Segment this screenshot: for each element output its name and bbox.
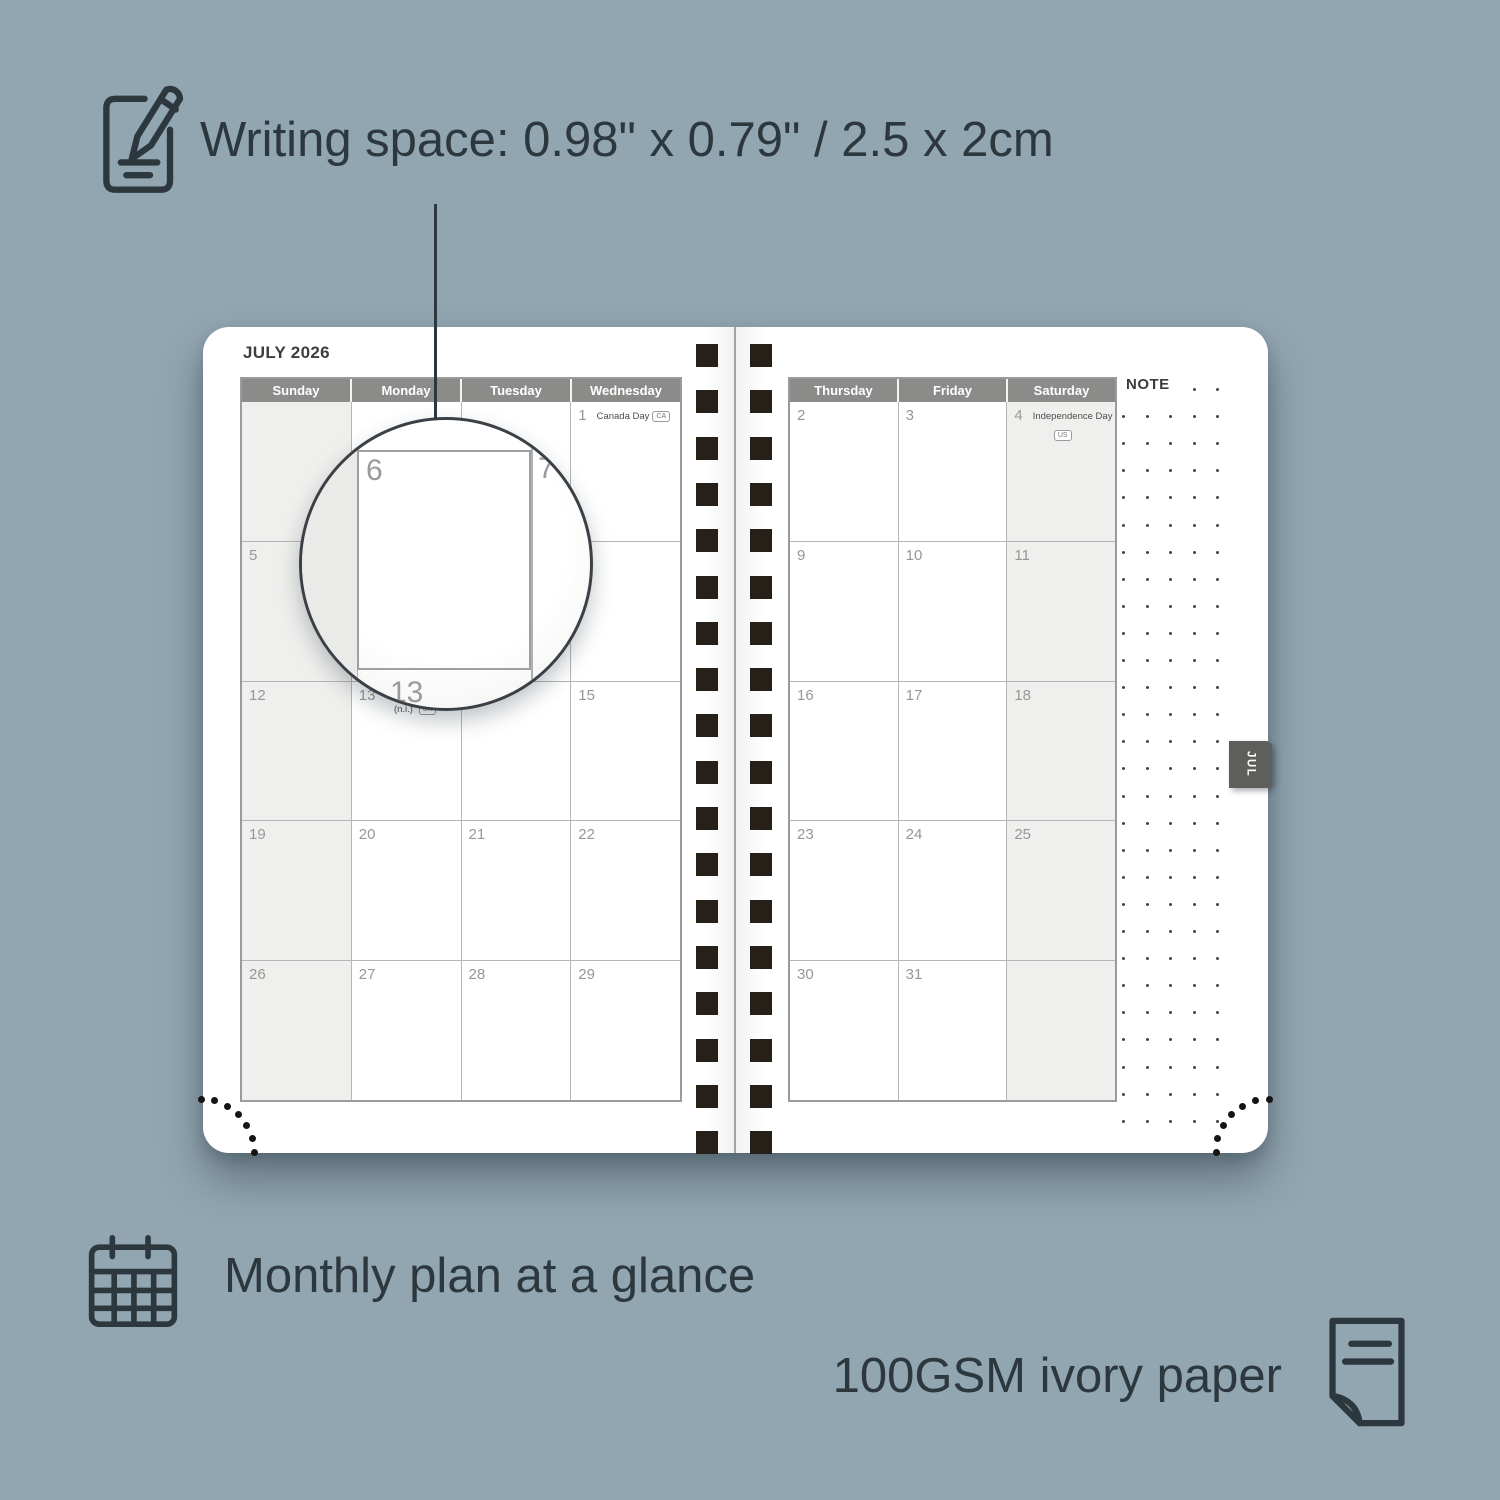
note-dot bbox=[1169, 578, 1172, 581]
note-dot bbox=[1169, 524, 1172, 527]
note-dot bbox=[1193, 849, 1196, 852]
note-dot bbox=[1216, 957, 1219, 960]
note-dot bbox=[1216, 849, 1219, 852]
note-dot bbox=[1216, 767, 1219, 770]
note-dot bbox=[1122, 632, 1125, 635]
note-dot bbox=[1193, 1120, 1196, 1123]
calendar-row: 3031 bbox=[790, 960, 1115, 1100]
perforation-dot bbox=[1239, 1103, 1246, 1110]
note-dot bbox=[1169, 767, 1172, 770]
perforation-dot bbox=[1228, 1111, 1235, 1118]
calendar-cell: 10 bbox=[898, 542, 1007, 681]
note-dot bbox=[1169, 849, 1172, 852]
magnified-bottom-day-number: 13 bbox=[390, 676, 423, 710]
calendar-cell: 29 bbox=[570, 961, 680, 1100]
calendar-row: 26272829 bbox=[242, 960, 680, 1100]
spiral-hole bbox=[750, 529, 772, 552]
spiral-hole bbox=[696, 529, 718, 552]
note-dot bbox=[1193, 957, 1196, 960]
note-dot bbox=[1122, 605, 1125, 608]
note-dot bbox=[1216, 496, 1219, 499]
cell-content: 18 bbox=[1007, 682, 1115, 704]
note-dot bbox=[1169, 795, 1172, 798]
note-dot bbox=[1216, 740, 1219, 743]
note-dot bbox=[1122, 767, 1125, 770]
spiral-hole bbox=[750, 946, 772, 969]
note-dot bbox=[1122, 740, 1125, 743]
perforation-dot bbox=[1213, 1149, 1220, 1156]
magnified-grid-line bbox=[531, 420, 533, 708]
note-dot bbox=[1169, 903, 1172, 906]
note-dot bbox=[1122, 849, 1125, 852]
note-dot bbox=[1193, 578, 1196, 581]
calendar-cell: 2 bbox=[790, 402, 898, 541]
calendar-cell: 15 bbox=[570, 682, 680, 821]
day-number: 20 bbox=[359, 826, 376, 843]
pointer-line bbox=[434, 204, 437, 420]
note-dot bbox=[1122, 1011, 1125, 1014]
note-dot bbox=[1216, 415, 1219, 418]
note-dot bbox=[1169, 442, 1172, 445]
spiral-hole bbox=[696, 761, 718, 784]
note-dot bbox=[1146, 415, 1149, 418]
note-dot bbox=[1122, 903, 1125, 906]
note-dot bbox=[1146, 740, 1149, 743]
note-dot bbox=[1122, 686, 1125, 689]
note-dot bbox=[1146, 1066, 1149, 1069]
note-dot bbox=[1216, 442, 1219, 445]
note-dot bbox=[1146, 822, 1149, 825]
cell-content: 21 bbox=[462, 821, 571, 843]
cell-content: 25 bbox=[1007, 821, 1115, 843]
note-dot bbox=[1216, 1093, 1219, 1096]
note-dot bbox=[1122, 713, 1125, 716]
note-dot bbox=[1122, 930, 1125, 933]
day-number: 31 bbox=[906, 966, 923, 983]
spiral-hole bbox=[750, 344, 772, 367]
note-dot bbox=[1169, 957, 1172, 960]
day-number: 16 bbox=[797, 687, 814, 704]
day-header: Wednesday bbox=[570, 379, 680, 402]
day-number: 18 bbox=[1014, 687, 1031, 704]
writing-space-text: Writing space: 0.98" x 0.79" / 2.5 x 2cm bbox=[200, 112, 1054, 168]
calendar-cell: 9 bbox=[790, 542, 898, 681]
note-dot bbox=[1169, 659, 1172, 662]
spiral-hole bbox=[750, 1131, 772, 1154]
day-number: 22 bbox=[578, 826, 595, 843]
note-dot bbox=[1146, 496, 1149, 499]
spiral-hole bbox=[750, 900, 772, 923]
calendar-row: 234Independence DayUS bbox=[790, 402, 1115, 541]
spiral-hole bbox=[696, 668, 718, 691]
calendar-cell: 4Independence DayUS bbox=[1006, 402, 1115, 541]
calendar-cell: 31 bbox=[898, 961, 1007, 1100]
cell-content: 11 bbox=[1007, 542, 1115, 564]
note-dot bbox=[1146, 903, 1149, 906]
note-dot bbox=[1122, 469, 1125, 472]
calendar-header: SundayMondayTuesdayWednesday bbox=[242, 379, 680, 402]
note-dot bbox=[1169, 415, 1172, 418]
magnified-day-number: 6 bbox=[366, 454, 383, 488]
cell-content: 22 bbox=[571, 821, 680, 843]
note-dot bbox=[1146, 849, 1149, 852]
spiral-hole bbox=[696, 992, 718, 1015]
note-dot bbox=[1193, 876, 1196, 879]
note-dot bbox=[1146, 767, 1149, 770]
perforation-dot bbox=[249, 1135, 256, 1142]
day-number: 1 bbox=[578, 407, 586, 424]
note-dot bbox=[1216, 686, 1219, 689]
paper-icon bbox=[1320, 1314, 1414, 1430]
spiral-hole bbox=[696, 344, 718, 367]
cell-content: 19 bbox=[242, 821, 351, 843]
calendar-cell: 28 bbox=[461, 961, 571, 1100]
note-dot bbox=[1146, 551, 1149, 554]
day-header: Saturday bbox=[1006, 379, 1115, 402]
note-dot bbox=[1169, 605, 1172, 608]
note-dot bbox=[1193, 984, 1196, 987]
calendar-cell: 16 bbox=[790, 682, 898, 821]
note-dot bbox=[1169, 1066, 1172, 1069]
note-dot bbox=[1169, 984, 1172, 987]
note-dot bbox=[1193, 686, 1196, 689]
day-number: 4 bbox=[1014, 407, 1022, 424]
calendar-cell: 23 bbox=[790, 821, 898, 960]
note-dot bbox=[1169, 1038, 1172, 1041]
note-dot bbox=[1193, 1066, 1196, 1069]
note-dot bbox=[1146, 795, 1149, 798]
note-dot bbox=[1216, 903, 1219, 906]
day-number: 15 bbox=[578, 687, 595, 704]
note-dot bbox=[1122, 524, 1125, 527]
cell-content: 27 bbox=[352, 961, 461, 983]
note-dot bbox=[1169, 1093, 1172, 1096]
day-number: 10 bbox=[906, 547, 923, 564]
spiral-hole bbox=[696, 714, 718, 737]
spiral-hole bbox=[750, 1085, 772, 1108]
note-dot bbox=[1169, 930, 1172, 933]
pencil-note-icon bbox=[90, 76, 190, 198]
spiral-hole bbox=[696, 437, 718, 460]
cell-content: 26 bbox=[242, 961, 351, 983]
note-dot bbox=[1216, 632, 1219, 635]
spiral-hole bbox=[696, 483, 718, 506]
perforation-dot bbox=[224, 1103, 231, 1110]
day-number: 17 bbox=[906, 687, 923, 704]
magnified-next-day-number: 7 bbox=[538, 452, 555, 486]
spiral-hole bbox=[750, 390, 772, 413]
day-number: 30 bbox=[797, 966, 814, 983]
note-dot bbox=[1169, 713, 1172, 716]
note-dot bbox=[1216, 605, 1219, 608]
note-dot bbox=[1216, 469, 1219, 472]
day-header: Monday bbox=[350, 379, 460, 402]
note-dot bbox=[1122, 442, 1125, 445]
spiral-hole bbox=[750, 668, 772, 691]
note-dot bbox=[1146, 632, 1149, 635]
calendar-cell bbox=[1006, 961, 1115, 1100]
perforation-dot bbox=[235, 1111, 242, 1118]
calendar-header: ThursdayFridaySaturday bbox=[790, 379, 1115, 402]
day-number: 27 bbox=[359, 966, 376, 983]
note-dot bbox=[1193, 469, 1196, 472]
note-dot bbox=[1216, 659, 1219, 662]
month-tab-label: JUL bbox=[1245, 751, 1257, 777]
calendar-cell: 18 bbox=[1006, 682, 1115, 821]
note-dot bbox=[1169, 686, 1172, 689]
note-dot bbox=[1169, 469, 1172, 472]
calendar-cell: 19 bbox=[242, 821, 351, 960]
perforation-dot bbox=[1220, 1122, 1227, 1129]
note-dot bbox=[1216, 930, 1219, 933]
note-dot bbox=[1146, 1093, 1149, 1096]
note-dot bbox=[1216, 524, 1219, 527]
calendar-cell: 3 bbox=[898, 402, 1007, 541]
note-dot bbox=[1169, 1120, 1172, 1123]
spiral-hole bbox=[750, 483, 772, 506]
calendar-icon bbox=[86, 1234, 180, 1328]
note-dot bbox=[1216, 876, 1219, 879]
spiral-hole bbox=[696, 853, 718, 876]
note-dot bbox=[1146, 984, 1149, 987]
note-dot bbox=[1216, 984, 1219, 987]
day-number: 29 bbox=[578, 966, 595, 983]
perforation-dot bbox=[251, 1149, 258, 1156]
spiral-hole bbox=[696, 946, 718, 969]
holiday-name: Independence Day bbox=[1033, 411, 1113, 422]
cell-content: 23 bbox=[790, 821, 898, 843]
day-number: 25 bbox=[1014, 826, 1031, 843]
cell-content: 20 bbox=[352, 821, 461, 843]
note-dot bbox=[1193, 1011, 1196, 1014]
calendar-cell: 21 bbox=[461, 821, 571, 960]
day-number: 11 bbox=[1014, 547, 1030, 564]
note-dot bbox=[1193, 415, 1196, 418]
note-dot bbox=[1146, 686, 1149, 689]
day-number: 12 bbox=[249, 687, 266, 704]
spiral-hole bbox=[696, 900, 718, 923]
note-dot bbox=[1216, 713, 1219, 716]
note-dot bbox=[1146, 469, 1149, 472]
cell-content: 9 bbox=[790, 542, 898, 564]
spiral-hole bbox=[696, 576, 718, 599]
day-number: 24 bbox=[906, 826, 923, 843]
calendar-cell: 27 bbox=[351, 961, 461, 1100]
note-dot bbox=[1193, 442, 1196, 445]
day-header: Friday bbox=[897, 379, 1006, 402]
calendar-cell: 1Canada DayCA bbox=[570, 402, 680, 541]
note-dot bbox=[1193, 659, 1196, 662]
paper-spec-text: 100GSM ivory paper bbox=[833, 1348, 1282, 1404]
note-dot bbox=[1122, 551, 1125, 554]
note-label: NOTE bbox=[1126, 376, 1174, 393]
note-dot bbox=[1146, 957, 1149, 960]
cell-content: 10 bbox=[899, 542, 1007, 564]
note-dot bbox=[1193, 496, 1196, 499]
spiral-hole bbox=[696, 807, 718, 830]
cell-content: 4Independence Day bbox=[1007, 402, 1115, 424]
note-dot bbox=[1122, 1066, 1125, 1069]
cell-content: 16 bbox=[790, 682, 898, 704]
day-number: 2 bbox=[797, 407, 805, 424]
spiral-hole bbox=[750, 576, 772, 599]
perforation-dot bbox=[198, 1096, 205, 1103]
calendar-cell: 22 bbox=[570, 821, 680, 960]
cell-content: 29 bbox=[571, 961, 680, 983]
cell-content: 24 bbox=[899, 821, 1007, 843]
cell-content: 3 bbox=[899, 402, 1007, 424]
note-dot bbox=[1146, 1038, 1149, 1041]
day-header: Tuesday bbox=[460, 379, 570, 402]
note-dot bbox=[1122, 822, 1125, 825]
note-dot bbox=[1193, 930, 1196, 933]
calendar-cell: 11 bbox=[1006, 542, 1115, 681]
spiral-hole bbox=[750, 807, 772, 830]
note-dot bbox=[1193, 713, 1196, 716]
spiral-hole bbox=[696, 1039, 718, 1062]
note-dot bbox=[1169, 740, 1172, 743]
note-dot bbox=[1216, 795, 1219, 798]
note-dot bbox=[1193, 1038, 1196, 1041]
spiral-hole bbox=[750, 622, 772, 645]
calendar-cell: 25 bbox=[1006, 821, 1115, 960]
spiral-hole bbox=[696, 390, 718, 413]
day-header: Sunday bbox=[242, 379, 350, 402]
note-dot bbox=[1146, 659, 1149, 662]
note-dot bbox=[1193, 524, 1196, 527]
day-number: 3 bbox=[906, 407, 914, 424]
spiral-hole bbox=[696, 1131, 718, 1154]
spiral-hole bbox=[750, 1039, 772, 1062]
month-title: JULY 2026 bbox=[243, 343, 330, 363]
spiral-hole bbox=[696, 1085, 718, 1108]
note-dot bbox=[1122, 496, 1125, 499]
holiday-name: Canada Day bbox=[597, 411, 650, 422]
note-dot bbox=[1216, 1011, 1219, 1014]
calendar-cell: 30 bbox=[790, 961, 898, 1100]
calendar-cell: 17 bbox=[898, 682, 1007, 821]
note-dot bbox=[1146, 1120, 1149, 1123]
note-dot bbox=[1146, 442, 1149, 445]
note-dot bbox=[1146, 1011, 1149, 1014]
note-dot bbox=[1169, 1011, 1172, 1014]
day-number: 26 bbox=[249, 966, 266, 983]
note-dot bbox=[1122, 659, 1125, 662]
region-badge: US bbox=[1054, 430, 1072, 441]
note-dot bbox=[1193, 1093, 1196, 1096]
note-dot bbox=[1146, 578, 1149, 581]
cell-content: 28 bbox=[462, 961, 571, 983]
note-dot bbox=[1216, 578, 1219, 581]
spiral-hole bbox=[750, 853, 772, 876]
cell-content: 15 bbox=[571, 682, 680, 704]
calendar-cell: 24 bbox=[898, 821, 1007, 960]
note-dot bbox=[1169, 876, 1172, 879]
calendar-body: 234Independence DayUS9101116171823242530… bbox=[790, 402, 1115, 1100]
calendar-grid-right: ThursdayFridaySaturday234Independence Da… bbox=[788, 377, 1117, 1102]
note-dot bbox=[1216, 1066, 1219, 1069]
magnifier-circle: 6 7 13 bbox=[299, 417, 593, 711]
note-dot bbox=[1122, 876, 1125, 879]
note-dot bbox=[1216, 1038, 1219, 1041]
calendar-cell: 26 bbox=[242, 961, 351, 1100]
note-dot bbox=[1216, 1120, 1219, 1123]
note-dot bbox=[1146, 605, 1149, 608]
note-dot bbox=[1122, 415, 1125, 418]
note-dot bbox=[1169, 632, 1172, 635]
spiral-hole bbox=[750, 992, 772, 1015]
note-dot bbox=[1193, 551, 1196, 554]
spiral-hole bbox=[696, 622, 718, 645]
calendar-row: 91011 bbox=[790, 541, 1115, 681]
day-number: 19 bbox=[249, 826, 266, 843]
cell-content: 2 bbox=[790, 402, 898, 424]
writing-space-rectangle bbox=[357, 450, 531, 670]
day-number: 28 bbox=[469, 966, 486, 983]
magnified-weekend-shade bbox=[302, 420, 358, 708]
calendar-row: 232425 bbox=[790, 820, 1115, 960]
note-dot bbox=[1122, 984, 1125, 987]
note-dot bbox=[1193, 605, 1196, 608]
note-dot bbox=[1216, 388, 1219, 391]
note-dot bbox=[1146, 524, 1149, 527]
month-tab: JUL bbox=[1229, 741, 1272, 788]
note-dot bbox=[1216, 822, 1219, 825]
note-dot bbox=[1169, 551, 1172, 554]
day-header: Thursday bbox=[790, 379, 897, 402]
note-dot bbox=[1193, 388, 1196, 391]
cell-content: 1Canada DayCA bbox=[571, 402, 680, 424]
spiral-hole bbox=[750, 761, 772, 784]
note-dot bbox=[1193, 632, 1196, 635]
day-number: 23 bbox=[797, 826, 814, 843]
page-divider bbox=[734, 327, 736, 1153]
perforation-dot bbox=[1266, 1096, 1273, 1103]
note-dot bbox=[1122, 1093, 1125, 1096]
note-dot bbox=[1122, 795, 1125, 798]
day-number: 5 bbox=[249, 547, 257, 564]
note-dot bbox=[1169, 496, 1172, 499]
spiral-hole bbox=[750, 437, 772, 460]
note-dot bbox=[1146, 930, 1149, 933]
day-number: 21 bbox=[469, 826, 486, 843]
note-dot bbox=[1193, 740, 1196, 743]
note-dot bbox=[1193, 903, 1196, 906]
day-number: 9 bbox=[797, 547, 805, 564]
cell-content: 30 bbox=[790, 961, 898, 983]
note-dot bbox=[1193, 767, 1196, 770]
spiral-hole bbox=[750, 714, 772, 737]
calendar-row: 161718 bbox=[790, 681, 1115, 821]
note-dot bbox=[1216, 551, 1219, 554]
note-dot bbox=[1122, 1120, 1125, 1123]
note-dot bbox=[1146, 713, 1149, 716]
cell-content: 17 bbox=[899, 682, 1007, 704]
note-dot bbox=[1169, 822, 1172, 825]
calendar-row: 19202122 bbox=[242, 820, 680, 960]
note-dot bbox=[1122, 1038, 1125, 1041]
note-dot bbox=[1146, 876, 1149, 879]
monthly-plan-text: Monthly plan at a glance bbox=[224, 1248, 755, 1304]
note-dot bbox=[1122, 957, 1125, 960]
note-dot bbox=[1193, 795, 1196, 798]
calendar-cell: 20 bbox=[351, 821, 461, 960]
cell-content: 31 bbox=[899, 961, 1007, 983]
holiday-badge-row: US bbox=[1007, 425, 1115, 443]
region-badge: CA bbox=[652, 411, 670, 422]
note-dot bbox=[1193, 822, 1196, 825]
note-dot bbox=[1122, 578, 1125, 581]
